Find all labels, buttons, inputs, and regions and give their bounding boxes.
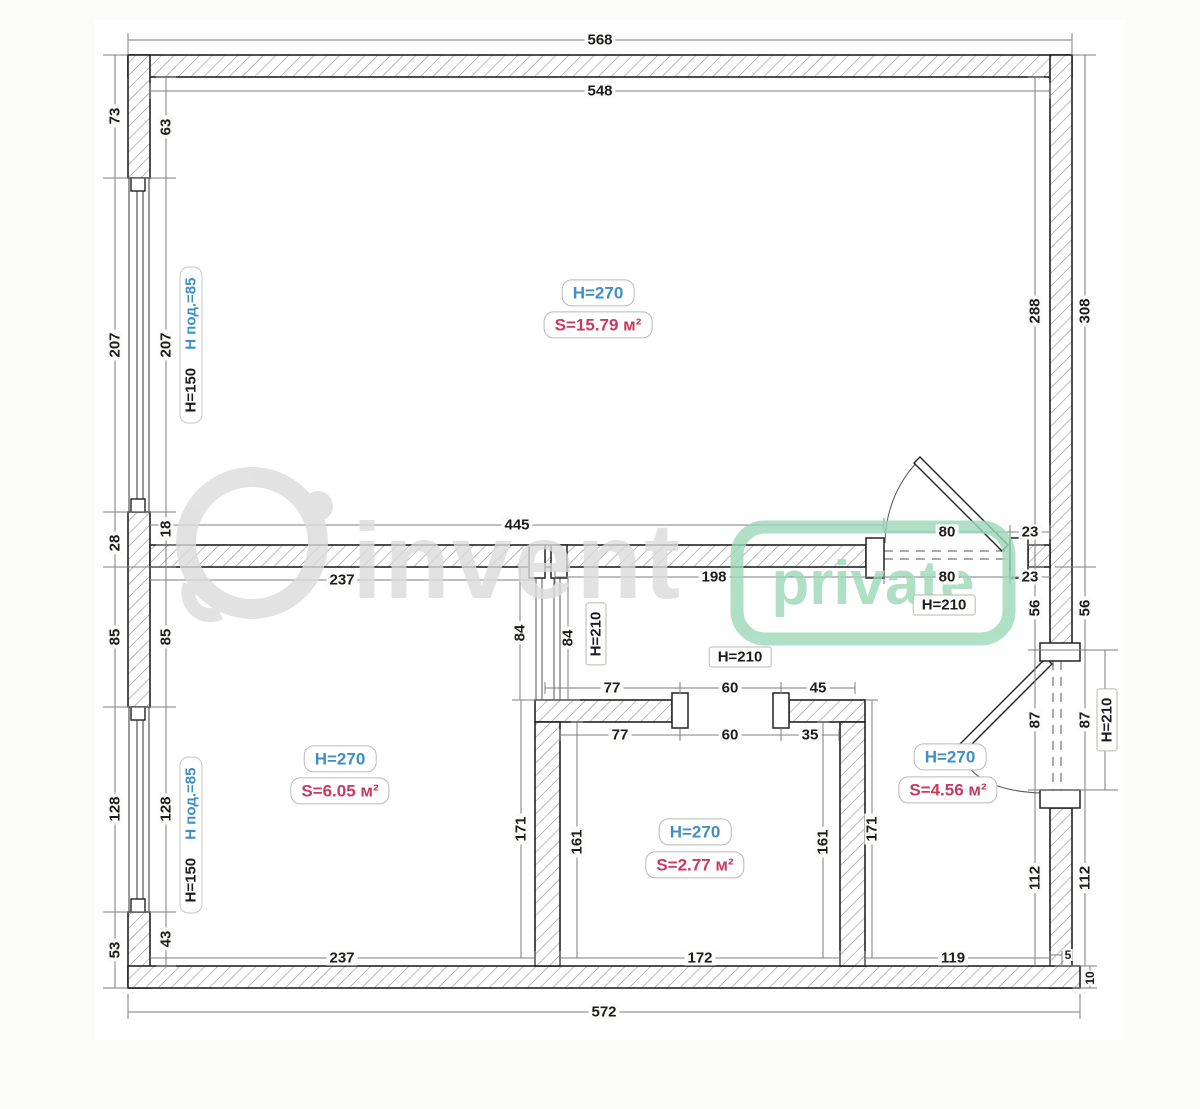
- dim-35: 35: [799, 728, 822, 743]
- dim-80-bot: 80: [936, 570, 959, 585]
- dim-left-128-inner: 128: [159, 793, 174, 824]
- door-right-height-label: H=210: [1097, 689, 1118, 752]
- dim-445: 445: [501, 518, 532, 533]
- window1-label: H=150 H под.=85: [180, 267, 203, 424]
- dim-right-112-outer: 112: [1078, 863, 1093, 893]
- wall-partition-left: [535, 722, 560, 966]
- room-main-height-label: H=270: [562, 279, 635, 306]
- dim-left-73: 73: [108, 105, 123, 128]
- dim-77-top: 77: [601, 681, 624, 696]
- dim-top-outer: 568: [584, 33, 615, 48]
- dim-172: 172: [684, 951, 715, 966]
- window1-sill: H под.=85: [183, 278, 200, 350]
- dim-right-87-outer: 87: [1078, 709, 1093, 732]
- wall-left-seg2: [128, 512, 150, 707]
- room-bath-height-label: H=270: [659, 818, 732, 845]
- dim-237-bottom: 237: [326, 951, 357, 966]
- dim-right-308: 308: [1078, 295, 1093, 326]
- room-hall-area-label: S=4.56 м²: [898, 776, 997, 803]
- dim-84-left: 84: [513, 622, 528, 645]
- dim-left-53: 53: [108, 939, 123, 962]
- dim-572: 572: [588, 1005, 619, 1020]
- dim-119: 119: [938, 951, 968, 966]
- dim-60-top: 60: [719, 681, 742, 696]
- dim-84-right: 84: [561, 627, 576, 650]
- room-hall-height-label: H=270: [914, 743, 987, 770]
- wall-bottom: [128, 966, 1080, 988]
- dim-left-18: 18: [159, 518, 174, 541]
- dim-237-mid: 237: [326, 573, 357, 588]
- door-top-height-label: H=210: [913, 595, 976, 616]
- dim-80-top: 80: [936, 525, 959, 540]
- dim-right-87: 87: [1028, 709, 1043, 732]
- dim-right-288: 288: [1028, 295, 1043, 326]
- dim-left-63: 63: [159, 116, 174, 139]
- dim-161-right: 161: [816, 826, 831, 857]
- window2-label: H=150 H под.=85: [180, 757, 203, 914]
- wall-middle-right: [1028, 545, 1050, 567]
- room-left-area-label: S=6.05 м²: [290, 777, 389, 804]
- dim-77-bot: 77: [609, 728, 632, 743]
- dim-23-bot: 23: [1019, 570, 1042, 585]
- dim-45: 45: [807, 681, 830, 696]
- wall-right-seg1: [1050, 55, 1072, 645]
- wall-top: [128, 55, 1072, 77]
- dim-23-top: 23: [1019, 525, 1042, 540]
- window1-height: H=150: [183, 368, 200, 413]
- dim-10: 10: [1084, 970, 1096, 985]
- floor-plan-drawing: invent private: [0, 0, 1200, 1109]
- dim-left-43: 43: [159, 928, 174, 951]
- room-main-area-label: S=15.79 м²: [544, 311, 653, 338]
- opening-passage-height-label: H=210: [586, 603, 607, 666]
- dim-left-85: 85: [108, 626, 123, 649]
- floor-plan-page: invent private 568 548 73 207 28 85 128 …: [0, 0, 1200, 1109]
- dim-top-inner: 548: [584, 84, 615, 99]
- dim-left-28: 28: [108, 532, 123, 555]
- wall-bath-right: [840, 722, 865, 966]
- door-bath-height-label: H=210: [709, 647, 772, 668]
- dim-left-128: 128: [108, 793, 123, 824]
- dim-right-112: 112: [1028, 863, 1043, 893]
- window2-sill: H под.=85: [183, 768, 200, 840]
- dim-right-56: 56: [1028, 597, 1043, 620]
- dim-161-left: 161: [570, 826, 585, 857]
- room-bath-area-label: S=2.77 м²: [645, 851, 744, 878]
- dim-198: 198: [698, 570, 729, 585]
- window2-height: H=150: [183, 858, 200, 903]
- dim-left-85-inner: 85: [159, 626, 174, 649]
- dim-171-right: 171: [865, 813, 880, 844]
- wall-bath-top-left: [535, 700, 672, 722]
- dim-171-left: 171: [514, 813, 529, 844]
- room-left-height-label: H=270: [304, 745, 377, 772]
- dim-60-bot: 60: [719, 728, 742, 743]
- wall-left-seg1: [128, 55, 150, 178]
- dim-5: 5: [1064, 949, 1073, 961]
- dim-left-207: 207: [108, 329, 123, 360]
- wall-bath-top-right: [789, 700, 865, 722]
- dim-right-56-outer: 56: [1078, 597, 1093, 620]
- dim-left-207-inner: 207: [159, 329, 174, 360]
